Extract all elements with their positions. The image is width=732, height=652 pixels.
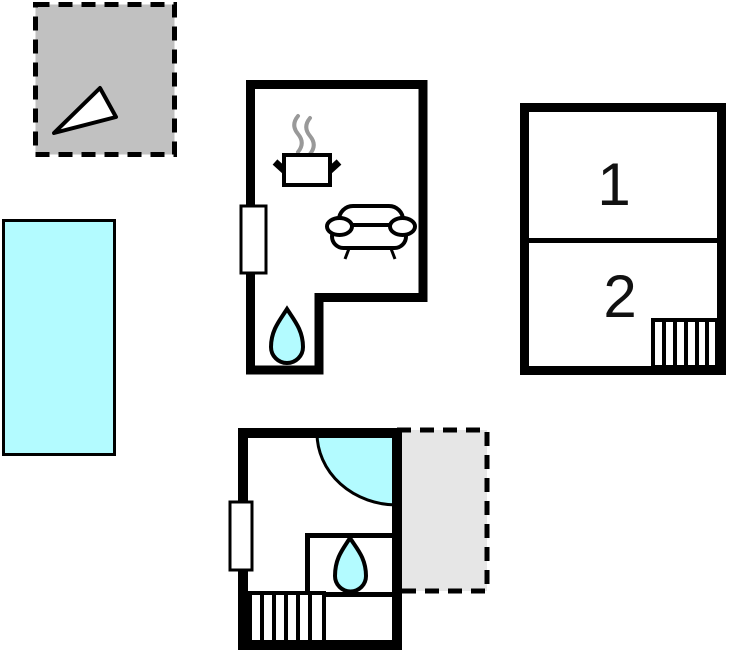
bottom-house bbox=[230, 433, 397, 645]
window-marker-lower bbox=[230, 502, 252, 570]
sofa-armrest-right bbox=[390, 218, 415, 235]
window-marker bbox=[241, 206, 266, 273]
room-2-label: 2 bbox=[603, 263, 636, 330]
pool bbox=[4, 221, 115, 455]
sofa-armrest-left bbox=[327, 218, 352, 235]
stairs-icon-bottom-house bbox=[250, 593, 324, 643]
floorplan-canvas: 1 2 bbox=[0, 0, 732, 652]
room-1-label: 1 bbox=[597, 151, 630, 218]
bedroom-house: 1 2 bbox=[524, 108, 722, 371]
floorplan-svg: 1 2 bbox=[0, 0, 732, 652]
lower-terrace-area bbox=[397, 430, 487, 591]
stairs-icon-bedroom-house bbox=[653, 320, 717, 367]
stove-icon bbox=[275, 155, 339, 185]
upper-terrace bbox=[36, 5, 175, 155]
pot-body bbox=[284, 155, 330, 185]
main-house bbox=[241, 85, 423, 371]
